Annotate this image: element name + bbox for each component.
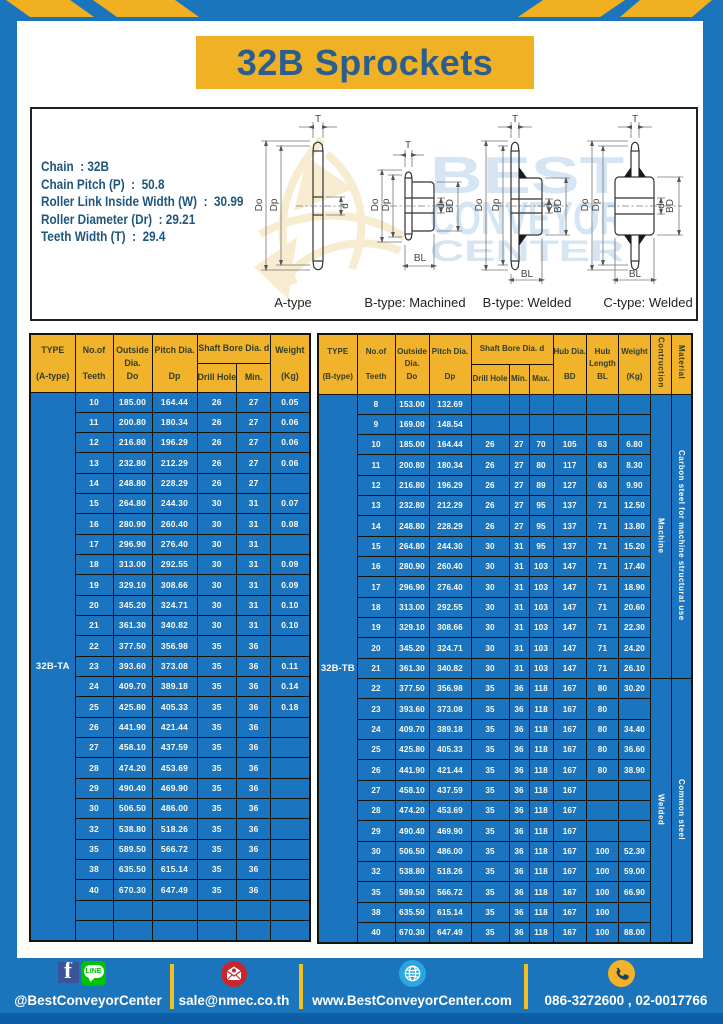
svg-text:BD: BD xyxy=(665,199,676,213)
svg-text:BL: BL xyxy=(521,269,534,280)
svg-text:T: T xyxy=(632,114,638,125)
svg-text:d: d xyxy=(340,203,351,209)
svg-text:Dp: Dp xyxy=(269,198,280,211)
svg-text:T: T xyxy=(512,114,518,125)
svg-text:Do: Do xyxy=(474,198,485,211)
svg-text:BD: BD xyxy=(553,199,564,213)
svg-text:Do: Do xyxy=(580,198,591,211)
svg-text:Do: Do xyxy=(254,198,265,211)
svg-text:B-type: Machined: B-type: Machined xyxy=(364,295,465,310)
svg-text:BL: BL xyxy=(629,269,642,280)
svg-text:Do: Do xyxy=(370,198,381,211)
svg-text:Dp: Dp xyxy=(591,198,602,211)
svg-text:BD: BD xyxy=(445,199,456,213)
svg-text:B-type: Welded: B-type: Welded xyxy=(483,295,572,310)
svg-text:T: T xyxy=(405,140,411,151)
svg-text:BL: BL xyxy=(414,253,427,264)
svg-text:Dp: Dp xyxy=(381,198,392,211)
svg-text:C-type: Welded: C-type: Welded xyxy=(603,295,692,310)
svg-text:Dp: Dp xyxy=(491,198,502,211)
svg-text:A-type: A-type xyxy=(274,295,312,310)
svg-text:T: T xyxy=(315,114,321,125)
